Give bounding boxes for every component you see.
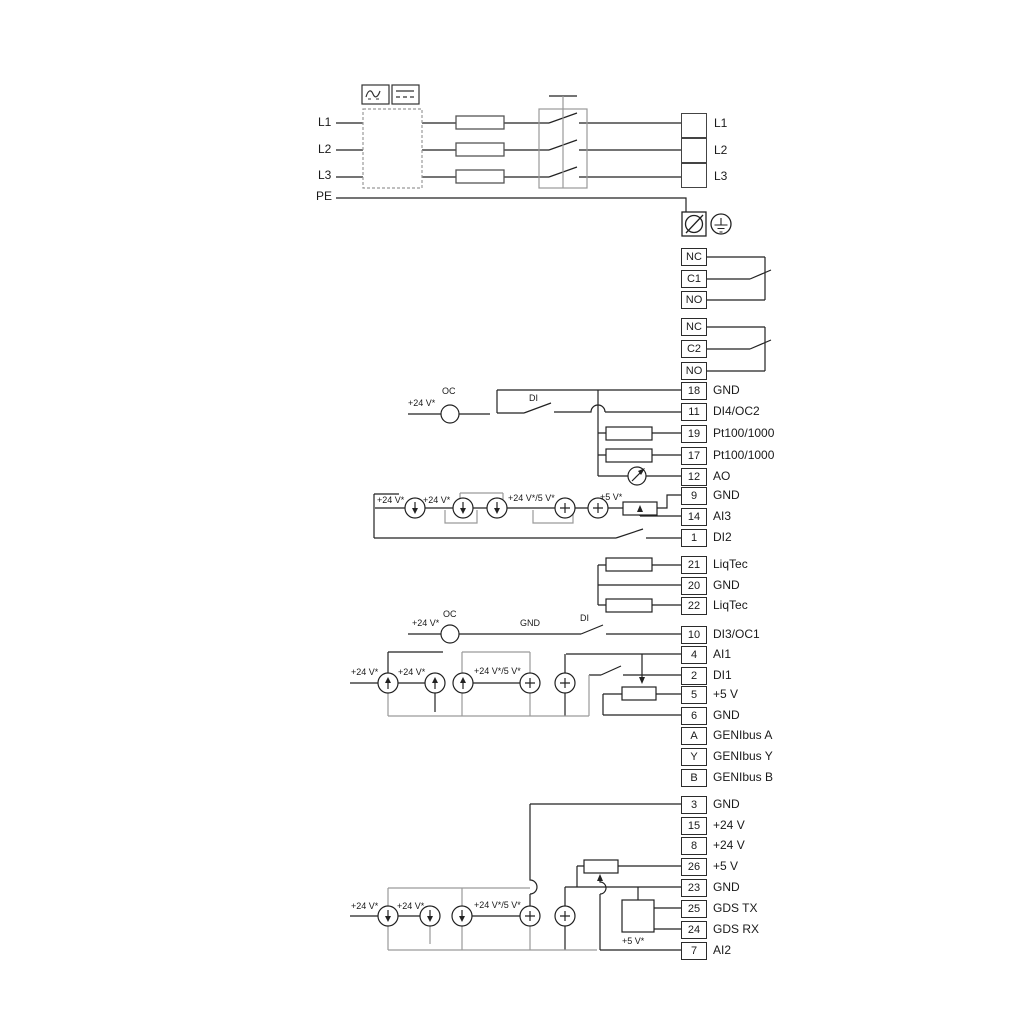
wiring-diagram: L1 L2 L3 PE L1 L2 L3 NC C1 NO NC C2 NO 1… — [0, 0, 1024, 1024]
mains-label-l2: L2 — [318, 143, 331, 156]
diagram-lines — [0, 0, 1024, 1024]
terminal-relay2-no: NO — [681, 362, 707, 380]
mains-label-l1: L1 — [318, 116, 331, 129]
ac-symbol-icon — [362, 85, 389, 104]
terminal-text: 8 — [691, 841, 697, 852]
terminal-text: 18 — [688, 386, 700, 397]
terminal-17: 17 — [681, 447, 707, 465]
dc-symbol-icon — [392, 85, 419, 104]
annotation-24v-5v: +24 V*/5 V* — [474, 900, 521, 910]
terminal-text: NC — [686, 322, 702, 333]
terminal-out-l1-label: L1 — [714, 117, 727, 130]
terminal-26-label: +5 V — [713, 860, 738, 873]
terminal-25: 25 — [681, 900, 707, 918]
terminal-out-l3-label: L3 — [714, 170, 727, 183]
terminal-14-label: AI3 — [713, 510, 731, 523]
terminal-relay1-no: NO — [681, 291, 707, 309]
annotation-24v: +24 V* — [423, 495, 450, 505]
terminal-genibus-y: Y — [681, 748, 707, 766]
terminal-5: 5 — [681, 686, 707, 704]
terminal-20: 20 — [681, 577, 707, 595]
open-collector-icon — [441, 405, 459, 423]
terminal-19-label: Pt100/1000 — [713, 427, 774, 440]
terminal-6: 6 — [681, 707, 707, 725]
terminal-7-label: AI2 — [713, 944, 731, 957]
terminal-genibus-b: B — [681, 769, 707, 787]
terminal-text: 11 — [688, 407, 699, 418]
terminal-6-label: GND — [713, 709, 740, 722]
annotation-24v-5v: +24 V*/5 V* — [508, 493, 555, 503]
supply-arrowheads — [385, 508, 500, 922]
io3-components — [584, 860, 654, 932]
terminal-text: 10 — [688, 630, 700, 641]
resistor-liqtec-21 — [606, 558, 652, 571]
terminal-text: 24 — [688, 925, 700, 936]
terminal-18: 18 — [681, 382, 707, 400]
terminal-7: 7 — [681, 942, 707, 960]
terminal-11: 11 — [681, 403, 707, 421]
terminal-25-label: GDS TX — [713, 902, 757, 915]
earth-ground-icon — [711, 214, 731, 234]
terminal-3-label: GND — [713, 798, 740, 811]
resistor-pt100-19 — [606, 427, 652, 440]
terminal-text: NO — [686, 366, 703, 377]
terminal-text: 22 — [688, 601, 700, 612]
terminal-text: 4 — [691, 650, 697, 661]
annotation-gnd: GND — [520, 618, 540, 628]
io2-components — [441, 625, 656, 700]
annotation-5v: +5 V* — [622, 936, 644, 946]
annotation-24v: +24 V* — [398, 667, 425, 677]
annotation-di: DI — [580, 613, 589, 623]
potentiometer-ai1 — [622, 687, 656, 700]
terminal-15-label: +24 V — [713, 819, 745, 832]
supply-source-icons — [378, 498, 608, 926]
terminal-4: 4 — [681, 646, 707, 664]
terminal-18-label: GND — [713, 384, 740, 397]
terminal-text: 26 — [688, 862, 700, 873]
terminal-12-label: AO — [713, 470, 730, 483]
annotation-24v: +24 V* — [351, 667, 378, 677]
terminal-relay2-c2: C2 — [681, 340, 707, 358]
terminal-text: 12 — [688, 472, 700, 483]
annotation-oc: OC — [442, 386, 456, 396]
terminal-text: C1 — [687, 274, 701, 285]
terminal-12: 12 — [681, 468, 707, 486]
terminal-19: 19 — [681, 425, 707, 443]
terminal-8: 8 — [681, 837, 707, 855]
annotation-24v: +24 V* — [377, 495, 404, 505]
terminal-5-label: +5 V — [713, 688, 738, 701]
terminal-24-label: GDS RX — [713, 923, 759, 936]
terminal-10: 10 — [681, 626, 707, 644]
terminal-out-l1 — [681, 113, 707, 138]
terminal-20-label: GND — [713, 579, 740, 592]
ai2-wiper-arrowhead — [597, 874, 603, 881]
relay1-contact — [707, 257, 771, 300]
terminal-text: 1 — [691, 533, 697, 544]
terminal-8-label: +24 V — [713, 839, 745, 852]
terminal-text: 15 — [688, 821, 700, 832]
terminal-text: 9 — [691, 491, 697, 502]
terminal-9-label: GND — [713, 489, 740, 502]
terminal-text: 19 — [688, 429, 700, 440]
terminal-22: 22 — [681, 597, 707, 615]
terminal-10-label: DI3/OC1 — [713, 628, 760, 641]
terminal-1-label: DI2 — [713, 531, 732, 544]
terminal-23-label: GND — [713, 881, 740, 894]
ai1-wiper-arrowhead — [639, 677, 645, 684]
fuses — [456, 116, 504, 183]
terminal-genibus-b-label: GENIbus B — [713, 771, 773, 784]
terminal-text: 7 — [691, 946, 697, 957]
terminal-text: 23 — [688, 883, 700, 894]
terminal-22-label: LiqTec — [713, 599, 748, 612]
relay2-contact — [707, 327, 771, 371]
terminal-11-label: DI4/OC2 — [713, 405, 760, 418]
terminal-text: B — [690, 773, 697, 784]
resistor-liqtec-22 — [606, 599, 652, 612]
terminal-text: 14 — [688, 512, 700, 523]
terminal-4-label: AI1 — [713, 648, 731, 661]
terminal-1: 1 — [681, 529, 707, 547]
mains-label-l3: L3 — [318, 169, 331, 182]
terminal-text: 21 — [688, 560, 700, 571]
annotation-oc: OC — [443, 609, 457, 619]
terminal-text: 3 — [691, 800, 697, 811]
terminal-2: 2 — [681, 667, 707, 685]
terminal-out-l2 — [681, 138, 707, 163]
terminal-text: 25 — [688, 904, 700, 915]
terminal-out-l2-label: L2 — [714, 144, 727, 157]
terminal-genibus-a-label: GENIbus A — [713, 729, 772, 742]
gds-sensor-box — [622, 900, 654, 932]
terminal-text: NC — [686, 252, 702, 263]
terminal-relay2-nc: NC — [681, 318, 707, 336]
terminal-17-label: Pt100/1000 — [713, 449, 774, 462]
terminal-text: 5 — [691, 690, 697, 701]
pe-terminal-icon — [682, 212, 706, 236]
terminal-text: 17 — [688, 451, 700, 462]
annotation-di: DI — [529, 393, 538, 403]
resistor-pt100-17 — [606, 449, 652, 462]
terminal-2-label: DI1 — [713, 669, 732, 682]
annotation-24v: +24 V* — [408, 398, 435, 408]
terminal-14: 14 — [681, 508, 707, 526]
terminal-21-label: LiqTec — [713, 558, 748, 571]
terminal-24: 24 — [681, 921, 707, 939]
terminal-21: 21 — [681, 556, 707, 574]
annotation-24v: +24 V* — [397, 901, 424, 911]
annotation-24v-5v: +24 V*/5 V* — [474, 666, 521, 676]
terminal-genibus-y-label: GENIbus Y — [713, 750, 773, 763]
mains-label-pe: PE — [316, 190, 332, 203]
terminal-text: NO — [686, 295, 703, 306]
terminal-genibus-a: A — [681, 727, 707, 745]
annotation-24v: +24 V* — [351, 901, 378, 911]
terminal-15: 15 — [681, 817, 707, 835]
terminal-relay1-c1: C1 — [681, 270, 707, 288]
terminal-9: 9 — [681, 487, 707, 505]
terminal-relay1-nc: NC — [681, 248, 707, 266]
terminal-text: A — [690, 731, 697, 742]
terminal-text: C2 — [687, 344, 701, 355]
annotation-24v: +24 V* — [412, 618, 439, 628]
terminal-text: 20 — [688, 581, 700, 592]
terminal-23: 23 — [681, 879, 707, 897]
terminal-text: 2 — [691, 671, 697, 682]
terminal-26: 26 — [681, 858, 707, 876]
terminal-text: Y — [690, 752, 697, 763]
terminal-out-l3 — [681, 163, 707, 188]
potentiometer-ai2 — [584, 860, 618, 873]
open-collector-icon — [441, 625, 459, 643]
mains-wiring — [336, 96, 686, 212]
annotation-5v: +5 V* — [600, 492, 622, 502]
terminal-text: 6 — [691, 711, 697, 722]
terminal-3: 3 — [681, 796, 707, 814]
